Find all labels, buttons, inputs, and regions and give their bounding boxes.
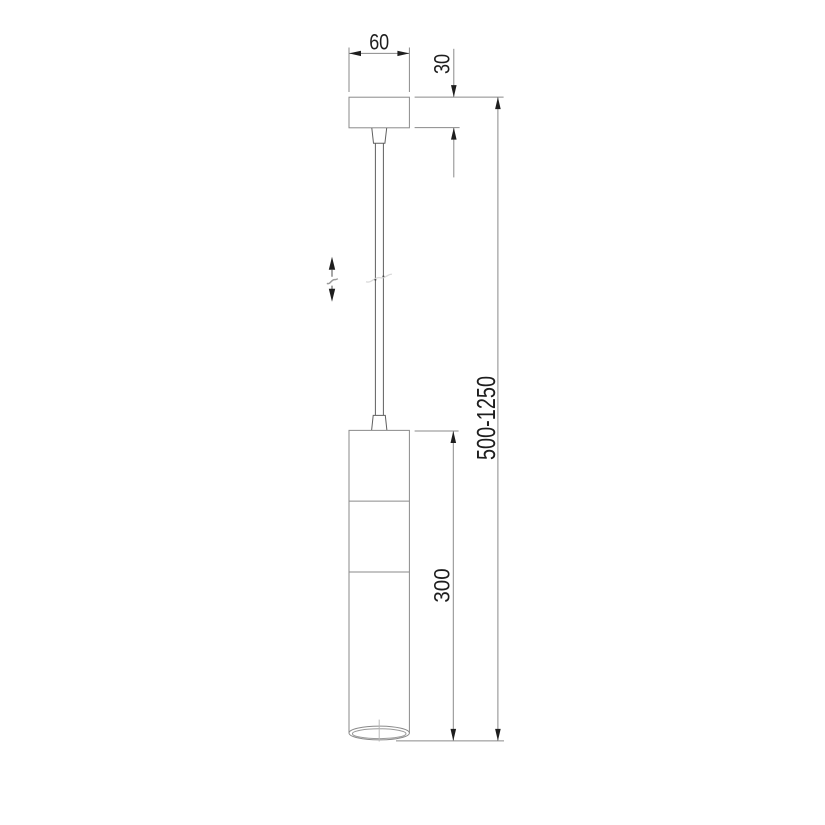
svg-text:30: 30 [429,54,454,74]
svg-text:60: 60 [369,30,389,55]
svg-text:500-1250: 500-1250 [473,376,501,460]
svg-text:300: 300 [429,568,454,602]
